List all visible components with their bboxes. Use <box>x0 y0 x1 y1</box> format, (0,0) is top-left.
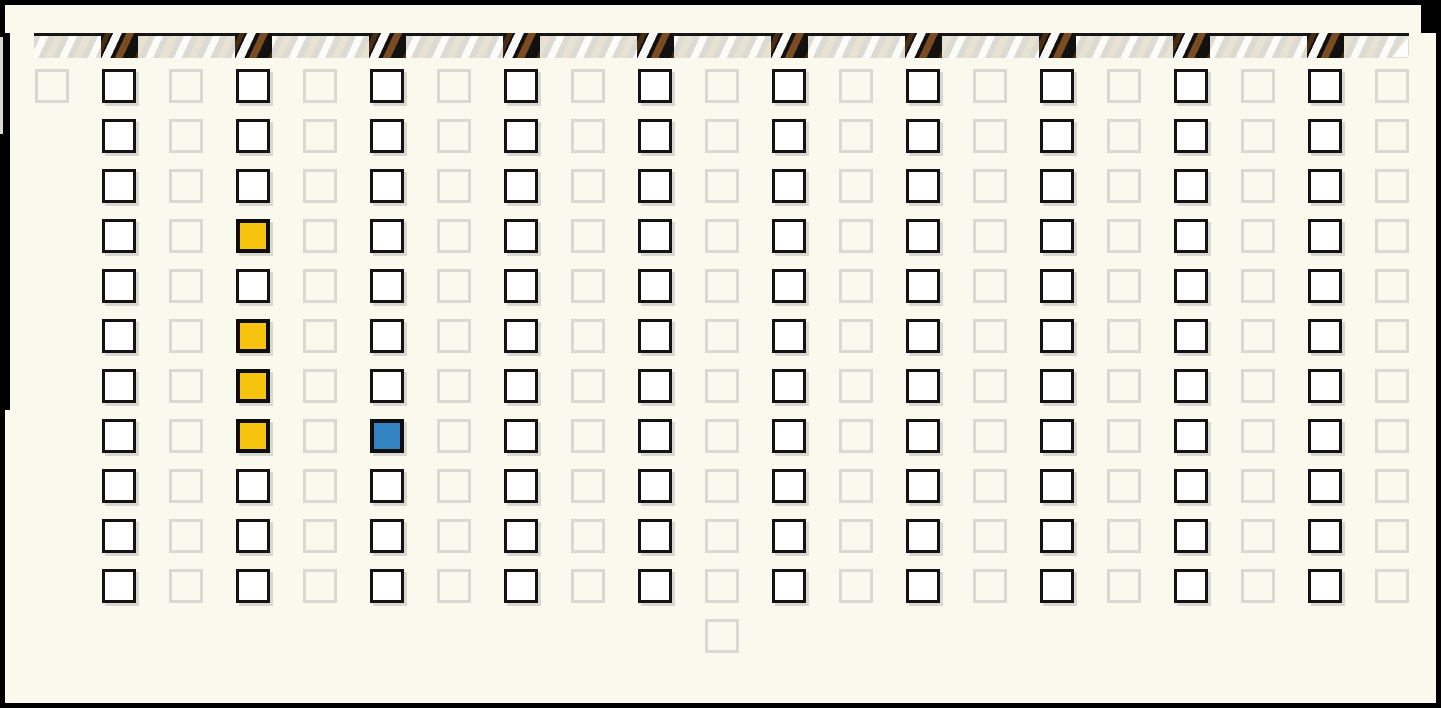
timeline-marker-col-1[interactable] <box>101 33 138 58</box>
inactive-cell-r8-c2[interactable] <box>169 419 203 453</box>
inactive-cell-r3-c6[interactable] <box>437 169 471 203</box>
yellow-cell-r4-c3[interactable] <box>236 219 270 253</box>
inactive-cell-r4-c10[interactable] <box>705 219 739 253</box>
inactive-cell-r9-c18[interactable] <box>1241 469 1275 503</box>
inactive-cell-r10-c14[interactable] <box>973 519 1007 553</box>
active-cell-r2-c13[interactable] <box>906 119 940 153</box>
active-cell-r8-c9[interactable] <box>638 419 672 453</box>
inactive-cell-r7-c12[interactable] <box>839 369 873 403</box>
inactive-cell-r4-c12[interactable] <box>839 219 873 253</box>
inactive-cell-r10-c8[interactable] <box>571 519 605 553</box>
inactive-cell-r9-c10[interactable] <box>705 469 739 503</box>
active-cell-r3-c11[interactable] <box>772 169 806 203</box>
inactive-cell-r7-c16[interactable] <box>1107 369 1141 403</box>
active-cell-r6-c9[interactable] <box>638 319 672 353</box>
inactive-cell-r9-c4[interactable] <box>303 469 337 503</box>
active-cell-r11-c11[interactable] <box>772 569 806 603</box>
inactive-cell-r3-c4[interactable] <box>303 169 337 203</box>
blue-cell-r8-c5[interactable] <box>370 419 404 453</box>
active-cell-r2-c7[interactable] <box>504 119 538 153</box>
active-cell-r1-c5[interactable] <box>370 69 404 103</box>
inactive-cell-r6-c12[interactable] <box>839 319 873 353</box>
inactive-cell-r1-c4[interactable] <box>303 69 337 103</box>
active-cell-r6-c11[interactable] <box>772 319 806 353</box>
inactive-cell-r3-c18[interactable] <box>1241 169 1275 203</box>
inactive-cell-r11-c14[interactable] <box>973 569 1007 603</box>
inactive-cell-r8-c4[interactable] <box>303 419 337 453</box>
active-cell-r5-c13[interactable] <box>906 269 940 303</box>
inactive-cell-r10-c20[interactable] <box>1375 519 1409 553</box>
active-cell-r3-c17[interactable] <box>1174 169 1208 203</box>
inactive-cell-r7-c4[interactable] <box>303 369 337 403</box>
active-cell-r3-c13[interactable] <box>906 169 940 203</box>
active-cell-r9-c9[interactable] <box>638 469 672 503</box>
timeline-marker-col-5[interactable] <box>369 33 406 58</box>
active-cell-r4-c1[interactable] <box>102 219 136 253</box>
active-cell-r5-c5[interactable] <box>370 269 404 303</box>
inactive-cell-r8-c8[interactable] <box>571 419 605 453</box>
active-cell-r4-c19[interactable] <box>1308 219 1342 253</box>
inactive-cell-r1-c12[interactable] <box>839 69 873 103</box>
inactive-cell-r7-c20[interactable] <box>1375 369 1409 403</box>
inactive-cell-r11-c4[interactable] <box>303 569 337 603</box>
inactive-cell-r1-c0[interactable] <box>35 69 69 103</box>
inactive-cell-r8-c12[interactable] <box>839 419 873 453</box>
active-cell-r9-c17[interactable] <box>1174 469 1208 503</box>
inactive-cell-r10-c2[interactable] <box>169 519 203 553</box>
inactive-cell-r3-c8[interactable] <box>571 169 605 203</box>
active-cell-r4-c15[interactable] <box>1040 219 1074 253</box>
active-cell-r9-c11[interactable] <box>772 469 806 503</box>
active-cell-r3-c3[interactable] <box>236 169 270 203</box>
active-cell-r7-c11[interactable] <box>772 369 806 403</box>
yellow-cell-r7-c3[interactable] <box>236 369 270 403</box>
inactive-cell-r12-c10[interactable] <box>705 619 739 653</box>
timeline-marker-col-19[interactable] <box>1307 33 1344 58</box>
active-cell-r5-c17[interactable] <box>1174 269 1208 303</box>
active-cell-r10-c7[interactable] <box>504 519 538 553</box>
inactive-cell-r6-c14[interactable] <box>973 319 1007 353</box>
active-cell-r9-c15[interactable] <box>1040 469 1074 503</box>
inactive-cell-r1-c18[interactable] <box>1241 69 1275 103</box>
inactive-cell-r5-c18[interactable] <box>1241 269 1275 303</box>
active-cell-r4-c17[interactable] <box>1174 219 1208 253</box>
inactive-cell-r10-c18[interactable] <box>1241 519 1275 553</box>
inactive-cell-r1-c8[interactable] <box>571 69 605 103</box>
inactive-cell-r8-c10[interactable] <box>705 419 739 453</box>
timeline-marker-col-7[interactable] <box>503 33 540 58</box>
active-cell-r2-c9[interactable] <box>638 119 672 153</box>
inactive-cell-r2-c20[interactable] <box>1375 119 1409 153</box>
active-cell-r6-c19[interactable] <box>1308 319 1342 353</box>
active-cell-r1-c15[interactable] <box>1040 69 1074 103</box>
inactive-cell-r6-c4[interactable] <box>303 319 337 353</box>
inactive-cell-r7-c14[interactable] <box>973 369 1007 403</box>
active-cell-r11-c5[interactable] <box>370 569 404 603</box>
left-frame-thick-segment <box>4 33 10 410</box>
inactive-cell-r7-c2[interactable] <box>169 369 203 403</box>
active-cell-r7-c9[interactable] <box>638 369 672 403</box>
inactive-cell-r7-c10[interactable] <box>705 369 739 403</box>
inactive-cell-r2-c16[interactable] <box>1107 119 1141 153</box>
active-cell-r8-c15[interactable] <box>1040 419 1074 453</box>
active-cell-r5-c7[interactable] <box>504 269 538 303</box>
inactive-cell-r10-c10[interactable] <box>705 519 739 553</box>
active-cell-r6-c17[interactable] <box>1174 319 1208 353</box>
inactive-cell-r10-c16[interactable] <box>1107 519 1141 553</box>
inactive-cell-r2-c8[interactable] <box>571 119 605 153</box>
active-cell-r9-c7[interactable] <box>504 469 538 503</box>
inactive-cell-r1-c6[interactable] <box>437 69 471 103</box>
active-cell-r2-c11[interactable] <box>772 119 806 153</box>
active-cell-r11-c15[interactable] <box>1040 569 1074 603</box>
inactive-cell-r6-c2[interactable] <box>169 319 203 353</box>
active-cell-r8-c13[interactable] <box>906 419 940 453</box>
inactive-cell-r5-c8[interactable] <box>571 269 605 303</box>
active-cell-r10-c17[interactable] <box>1174 519 1208 553</box>
active-cell-r5-c3[interactable] <box>236 269 270 303</box>
active-cell-r7-c19[interactable] <box>1308 369 1342 403</box>
inactive-cell-r11-c18[interactable] <box>1241 569 1275 603</box>
inactive-cell-r2-c6[interactable] <box>437 119 471 153</box>
inactive-cell-r9-c20[interactable] <box>1375 469 1409 503</box>
active-cell-r7-c15[interactable] <box>1040 369 1074 403</box>
active-cell-r9-c19[interactable] <box>1308 469 1342 503</box>
inactive-cell-r4-c14[interactable] <box>973 219 1007 253</box>
active-cell-r10-c9[interactable] <box>638 519 672 553</box>
inactive-cell-r11-c8[interactable] <box>571 569 605 603</box>
active-cell-r2-c1[interactable] <box>102 119 136 153</box>
inactive-cell-r6-c20[interactable] <box>1375 319 1409 353</box>
timeline-marker-col-11[interactable] <box>771 33 808 58</box>
inactive-cell-r6-c18[interactable] <box>1241 319 1275 353</box>
active-cell-r2-c15[interactable] <box>1040 119 1074 153</box>
inactive-cell-r7-c18[interactable] <box>1241 369 1275 403</box>
inactive-cell-r11-c16[interactable] <box>1107 569 1141 603</box>
inactive-cell-r4-c4[interactable] <box>303 219 337 253</box>
inactive-cell-r11-c20[interactable] <box>1375 569 1409 603</box>
active-cell-r11-c3[interactable] <box>236 569 270 603</box>
active-cell-r2-c19[interactable] <box>1308 119 1342 153</box>
active-cell-r4-c11[interactable] <box>772 219 806 253</box>
inactive-cell-r5-c10[interactable] <box>705 269 739 303</box>
inactive-cell-r11-c12[interactable] <box>839 569 873 603</box>
inactive-cell-r5-c6[interactable] <box>437 269 471 303</box>
inactive-cell-r7-c6[interactable] <box>437 369 471 403</box>
inactive-cell-r2-c18[interactable] <box>1241 119 1275 153</box>
active-cell-r4-c5[interactable] <box>370 219 404 253</box>
active-cell-r11-c17[interactable] <box>1174 569 1208 603</box>
active-cell-r4-c9[interactable] <box>638 219 672 253</box>
inactive-cell-r3-c14[interactable] <box>973 169 1007 203</box>
active-cell-r11-c1[interactable] <box>102 569 136 603</box>
active-cell-r8-c11[interactable] <box>772 419 806 453</box>
inactive-cell-r5-c2[interactable] <box>169 269 203 303</box>
active-cell-r3-c7[interactable] <box>504 169 538 203</box>
inactive-cell-r9-c8[interactable] <box>571 469 605 503</box>
active-cell-r11-c13[interactable] <box>906 569 940 603</box>
inactive-cell-r3-c10[interactable] <box>705 169 739 203</box>
inactive-cell-r2-c12[interactable] <box>839 119 873 153</box>
active-cell-r9-c3[interactable] <box>236 469 270 503</box>
active-cell-r9-c1[interactable] <box>102 469 136 503</box>
active-cell-r2-c3[interactable] <box>236 119 270 153</box>
timeline-marker-col-15[interactable] <box>1039 33 1076 58</box>
active-cell-r10-c1[interactable] <box>102 519 136 553</box>
active-cell-r8-c1[interactable] <box>102 419 136 453</box>
left-edge-scroll-strip[interactable] <box>0 37 3 134</box>
inactive-cell-r11-c2[interactable] <box>169 569 203 603</box>
active-cell-r9-c5[interactable] <box>370 469 404 503</box>
top-right-frame-step <box>1421 0 1436 33</box>
inactive-cell-r8-c18[interactable] <box>1241 419 1275 453</box>
active-cell-r7-c5[interactable] <box>370 369 404 403</box>
inactive-cell-r5-c16[interactable] <box>1107 269 1141 303</box>
timeline-marker-col-3[interactable] <box>235 33 272 58</box>
inactive-cell-r2-c4[interactable] <box>303 119 337 153</box>
active-cell-r6-c7[interactable] <box>504 319 538 353</box>
inactive-cell-r9-c6[interactable] <box>437 469 471 503</box>
active-cell-r10-c5[interactable] <box>370 519 404 553</box>
active-cell-r7-c17[interactable] <box>1174 369 1208 403</box>
inactive-cell-r5-c14[interactable] <box>973 269 1007 303</box>
inactive-cell-r6-c10[interactable] <box>705 319 739 353</box>
active-cell-r1-c1[interactable] <box>102 69 136 103</box>
active-cell-r6-c13[interactable] <box>906 319 940 353</box>
active-cell-r3-c9[interactable] <box>638 169 672 203</box>
active-cell-r3-c15[interactable] <box>1040 169 1074 203</box>
active-cell-r11-c9[interactable] <box>638 569 672 603</box>
active-cell-r1-c13[interactable] <box>906 69 940 103</box>
inactive-cell-r8-c20[interactable] <box>1375 419 1409 453</box>
inactive-cell-r7-c8[interactable] <box>571 369 605 403</box>
active-cell-r5-c9[interactable] <box>638 269 672 303</box>
inactive-cell-r6-c6[interactable] <box>437 319 471 353</box>
active-cell-r2-c17[interactable] <box>1174 119 1208 153</box>
inactive-cell-r1-c16[interactable] <box>1107 69 1141 103</box>
inactive-cell-r11-c10[interactable] <box>705 569 739 603</box>
inactive-cell-r4-c18[interactable] <box>1241 219 1275 253</box>
active-cell-r11-c7[interactable] <box>504 569 538 603</box>
inactive-cell-r5-c4[interactable] <box>303 269 337 303</box>
active-cell-r8-c7[interactable] <box>504 419 538 453</box>
active-cell-r5-c19[interactable] <box>1308 269 1342 303</box>
timeline-marker-col-17[interactable] <box>1173 33 1210 58</box>
active-cell-r1-c3[interactable] <box>236 69 270 103</box>
inactive-cell-r3-c12[interactable] <box>839 169 873 203</box>
inactive-cell-r4-c8[interactable] <box>571 219 605 253</box>
timeline-marker-col-9[interactable] <box>637 33 674 58</box>
board-canvas <box>0 0 1441 708</box>
active-cell-r3-c5[interactable] <box>370 169 404 203</box>
active-cell-r5-c1[interactable] <box>102 269 136 303</box>
inactive-cell-r5-c20[interactable] <box>1375 269 1409 303</box>
active-cell-r6-c1[interactable] <box>102 319 136 353</box>
active-cell-r8-c17[interactable] <box>1174 419 1208 453</box>
active-cell-r10-c19[interactable] <box>1308 519 1342 553</box>
active-cell-r6-c5[interactable] <box>370 319 404 353</box>
inactive-cell-r10-c6[interactable] <box>437 519 471 553</box>
active-cell-r7-c7[interactable] <box>504 369 538 403</box>
inactive-cell-r8-c16[interactable] <box>1107 419 1141 453</box>
active-cell-r8-c19[interactable] <box>1308 419 1342 453</box>
inactive-cell-r3-c16[interactable] <box>1107 169 1141 203</box>
active-cell-r5-c15[interactable] <box>1040 269 1074 303</box>
active-cell-r3-c1[interactable] <box>102 169 136 203</box>
active-cell-r3-c19[interactable] <box>1308 169 1342 203</box>
active-cell-r10-c15[interactable] <box>1040 519 1074 553</box>
inactive-cell-r8-c14[interactable] <box>973 419 1007 453</box>
active-cell-r2-c5[interactable] <box>370 119 404 153</box>
inactive-cell-r9-c2[interactable] <box>169 469 203 503</box>
inactive-cell-r1-c14[interactable] <box>973 69 1007 103</box>
inactive-cell-r8-c6[interactable] <box>437 419 471 453</box>
active-cell-r5-c11[interactable] <box>772 269 806 303</box>
active-cell-r1-c19[interactable] <box>1308 69 1342 103</box>
inactive-cell-r4-c20[interactable] <box>1375 219 1409 253</box>
inactive-cell-r4-c2[interactable] <box>169 219 203 253</box>
active-cell-r1-c7[interactable] <box>504 69 538 103</box>
active-cell-r7-c13[interactable] <box>906 369 940 403</box>
inactive-cell-r11-c6[interactable] <box>437 569 471 603</box>
inactive-cell-r3-c20[interactable] <box>1375 169 1409 203</box>
inactive-cell-r9-c12[interactable] <box>839 469 873 503</box>
active-cell-r10-c13[interactable] <box>906 519 940 553</box>
inactive-cell-r4-c16[interactable] <box>1107 219 1141 253</box>
inactive-cell-r6-c8[interactable] <box>571 319 605 353</box>
yellow-cell-r8-c3[interactable] <box>236 419 270 453</box>
active-cell-r6-c15[interactable] <box>1040 319 1074 353</box>
inactive-cell-r4-c6[interactable] <box>437 219 471 253</box>
inactive-cell-r10-c12[interactable] <box>839 519 873 553</box>
active-cell-r4-c7[interactable] <box>504 219 538 253</box>
active-cell-r4-c13[interactable] <box>906 219 940 253</box>
inactive-cell-r5-c12[interactable] <box>839 269 873 303</box>
inactive-cell-r9-c14[interactable] <box>973 469 1007 503</box>
inactive-cell-r1-c10[interactable] <box>705 69 739 103</box>
active-cell-r9-c13[interactable] <box>906 469 940 503</box>
active-cell-r10-c3[interactable] <box>236 519 270 553</box>
active-cell-r11-c19[interactable] <box>1308 569 1342 603</box>
active-cell-r10-c11[interactable] <box>772 519 806 553</box>
inactive-cell-r2-c14[interactable] <box>973 119 1007 153</box>
inactive-cell-r9-c16[interactable] <box>1107 469 1141 503</box>
active-cell-r7-c1[interactable] <box>102 369 136 403</box>
inactive-cell-r10-c4[interactable] <box>303 519 337 553</box>
yellow-cell-r6-c3[interactable] <box>236 319 270 353</box>
inactive-cell-r2-c2[interactable] <box>169 119 203 153</box>
inactive-cell-r1-c20[interactable] <box>1375 69 1409 103</box>
inactive-cell-r2-c10[interactable] <box>705 119 739 153</box>
inactive-cell-r6-c16[interactable] <box>1107 319 1141 353</box>
active-cell-r1-c9[interactable] <box>638 69 672 103</box>
inactive-cell-r1-c2[interactable] <box>169 69 203 103</box>
active-cell-r1-c11[interactable] <box>772 69 806 103</box>
inactive-cell-r3-c2[interactable] <box>169 169 203 203</box>
timeline-marker-col-13[interactable] <box>905 33 942 58</box>
active-cell-r1-c17[interactable] <box>1174 69 1208 103</box>
